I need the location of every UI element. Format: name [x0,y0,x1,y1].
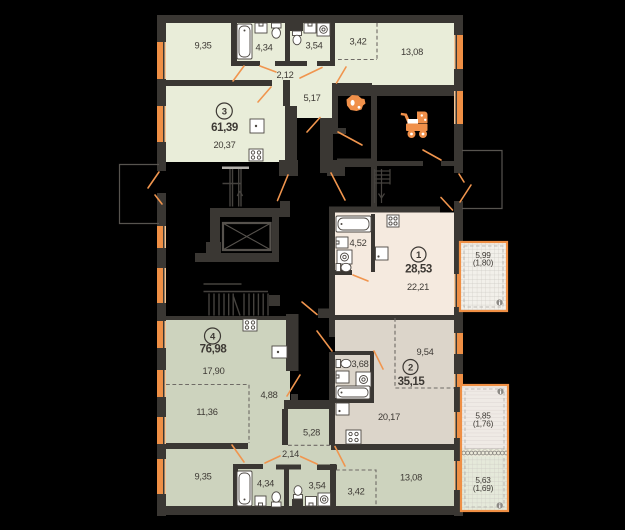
svg-text:13,08: 13,08 [400,473,422,483]
svg-text:4,88: 4,88 [260,390,277,400]
svg-text:3,54: 3,54 [308,481,325,491]
svg-text:20,17: 20,17 [378,412,400,422]
svg-text:2,14: 2,14 [282,449,299,459]
svg-text:61,39: 61,39 [211,122,238,134]
svg-text:3: 3 [222,107,227,118]
svg-text:3,42: 3,42 [347,487,364,497]
svg-text:5,28: 5,28 [303,428,320,438]
svg-text:35,15: 35,15 [398,376,426,388]
svg-text:17,90: 17,90 [202,366,224,376]
svg-text:22,21: 22,21 [407,282,429,292]
svg-text:4,34: 4,34 [257,479,274,489]
svg-text:(1,76): (1,76) [473,419,494,429]
svg-text:20,37: 20,37 [213,140,235,150]
svg-text:3,54: 3,54 [305,41,322,51]
svg-text:4,52: 4,52 [349,238,366,248]
svg-text:2,12: 2,12 [276,70,293,80]
svg-text:(1,80): (1,80) [473,258,494,268]
svg-text:76,98: 76,98 [200,344,228,356]
svg-text:13,08: 13,08 [401,47,423,57]
svg-text:3,68: 3,68 [351,359,368,369]
svg-text:(1,69): (1,69) [473,483,494,493]
svg-text:9,35: 9,35 [194,472,211,482]
svg-text:5,17: 5,17 [303,93,320,103]
svg-text:3,42: 3,42 [349,37,366,47]
svg-text:9,35: 9,35 [194,41,211,51]
svg-text:28,53: 28,53 [405,264,432,276]
svg-text:9,54: 9,54 [416,347,433,357]
svg-text:11,36: 11,36 [196,407,217,417]
svg-text:2: 2 [408,363,413,374]
svg-text:4,34: 4,34 [255,43,272,53]
